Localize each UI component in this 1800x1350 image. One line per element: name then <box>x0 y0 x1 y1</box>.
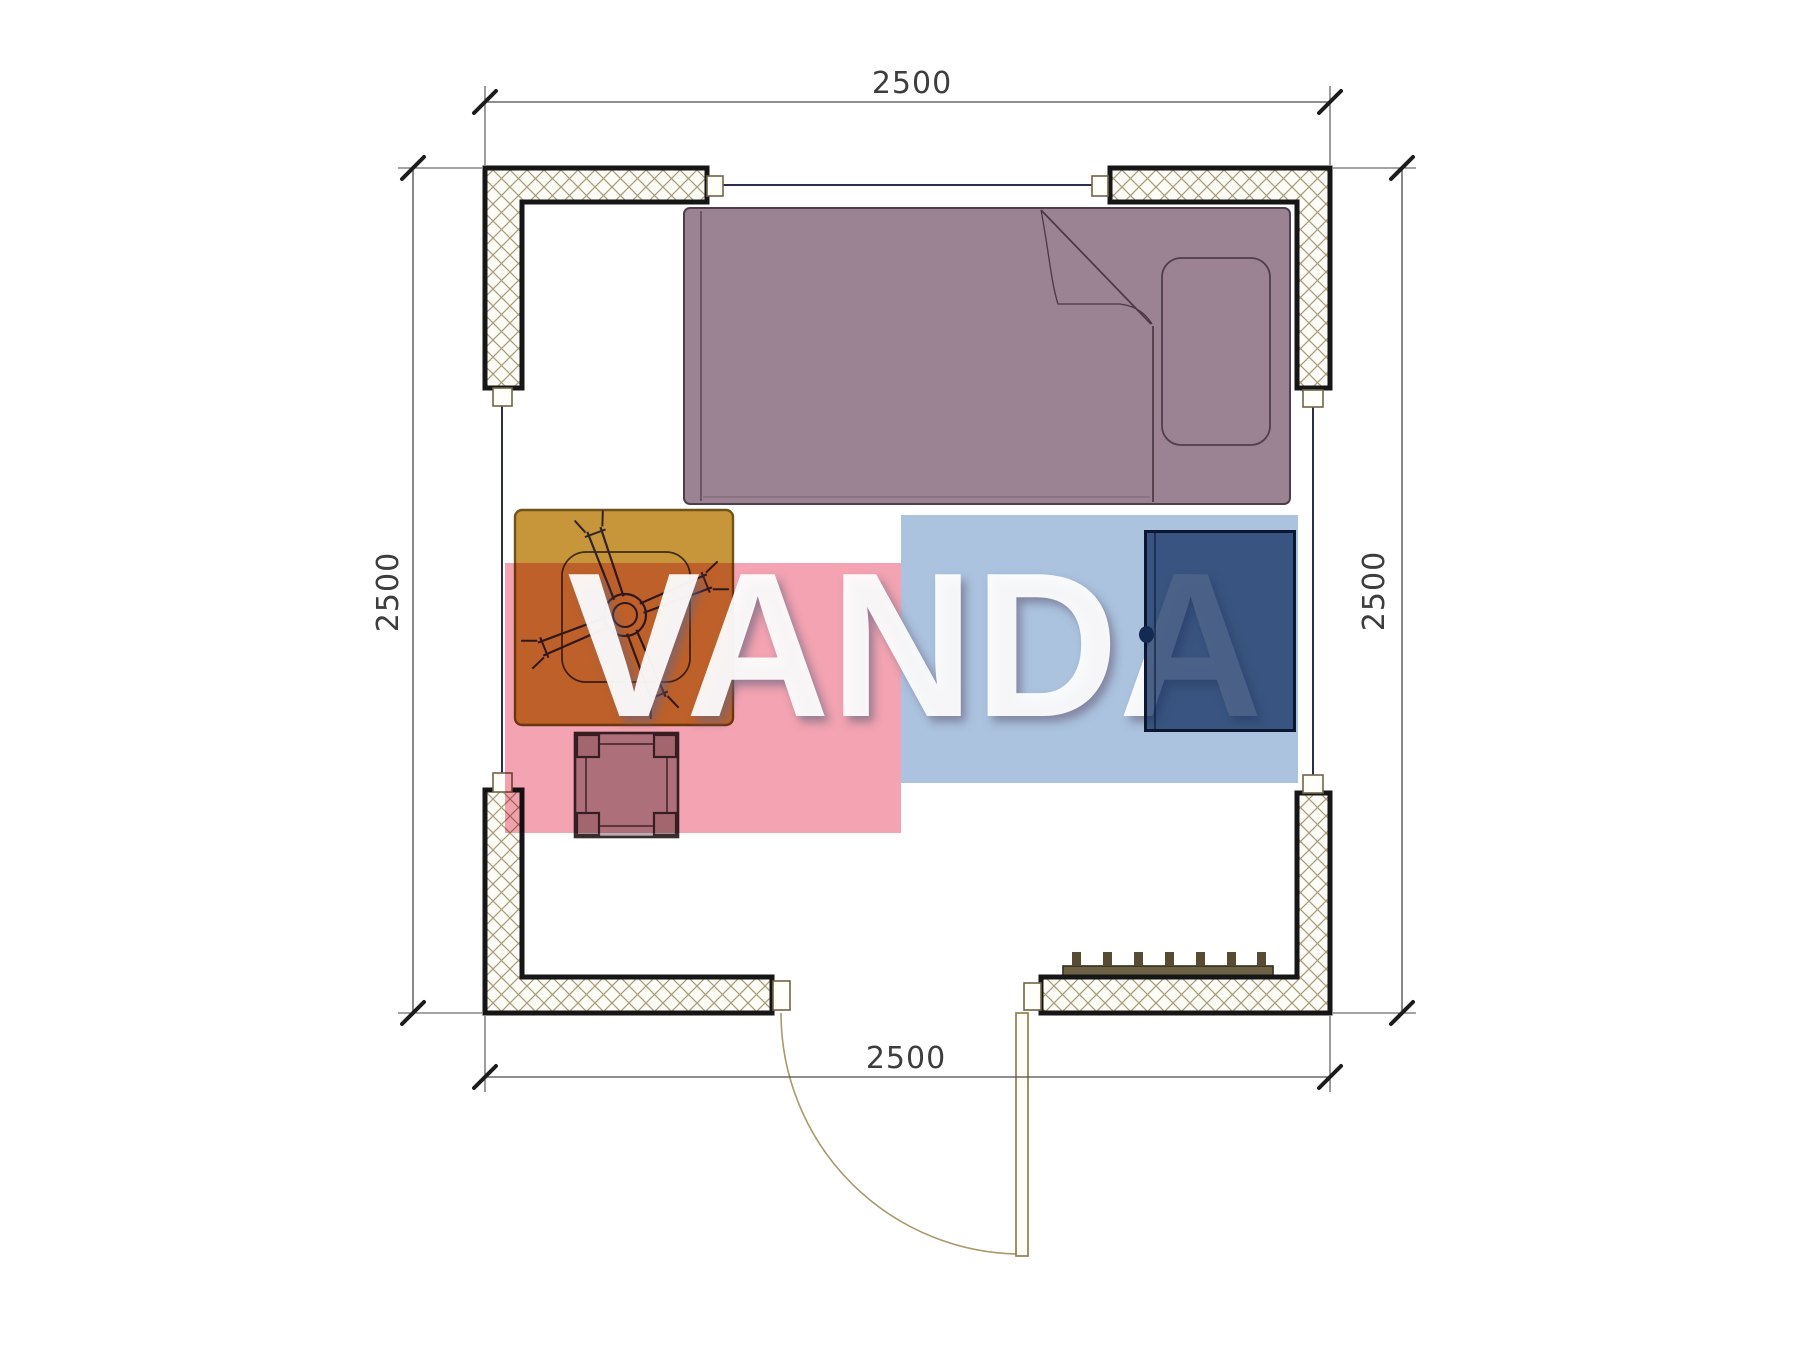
dimension-label-bottom: 2500 <box>866 1041 946 1076</box>
cabinet <box>1144 530 1296 732</box>
cabinet-knob <box>1139 626 1154 643</box>
dimension-label-left: 2500 <box>371 552 406 632</box>
wall-top-left <box>485 168 707 388</box>
cabinet-door-line <box>1154 533 1156 729</box>
dimension-label-top: 2500 <box>872 66 952 101</box>
pillow <box>1162 258 1270 445</box>
dimension-label-right: 2500 <box>1357 551 1392 631</box>
bed <box>684 208 1290 504</box>
wall-bottom-right <box>1041 793 1330 1013</box>
floor-plan-canvas: 2500 2500 2500 2500 VANDA <box>0 0 1800 1350</box>
door-leaf <box>1016 1013 1028 1256</box>
